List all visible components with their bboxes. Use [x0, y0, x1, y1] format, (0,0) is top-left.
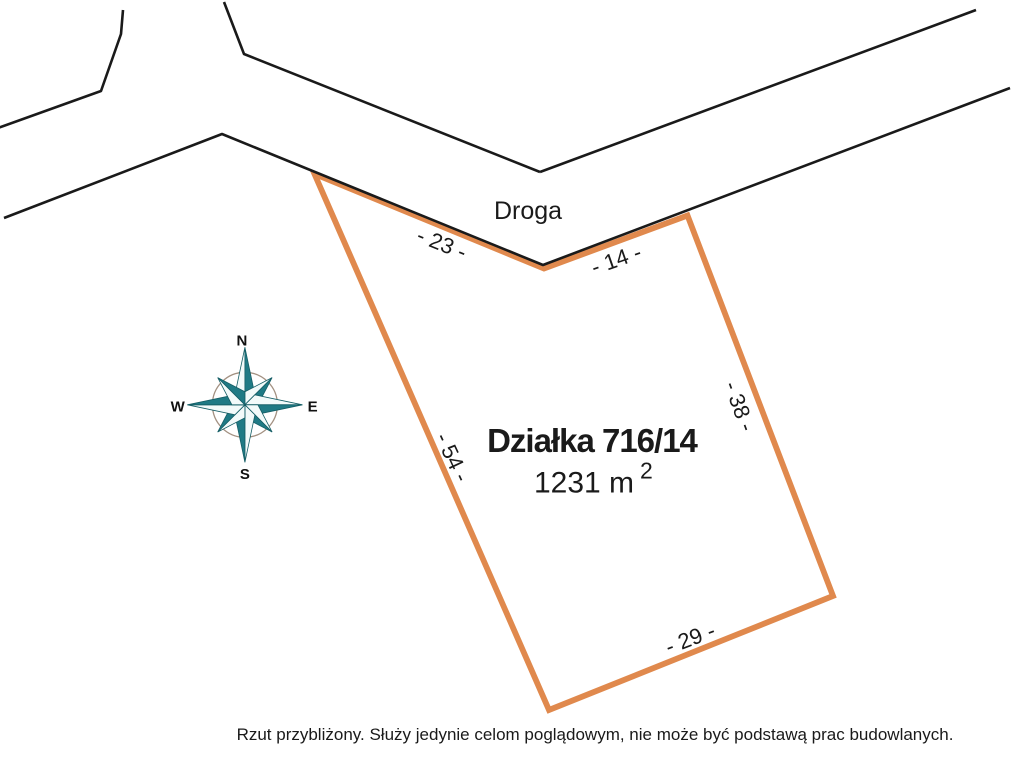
svg-text:Działka 716/14: Działka 716/14 — [487, 422, 698, 459]
svg-text:2: 2 — [640, 458, 653, 484]
svg-text:E: E — [308, 399, 318, 416]
svg-text:S: S — [240, 466, 250, 483]
svg-text:Droga: Droga — [494, 197, 562, 225]
svg-text:1231 m: 1231 m — [534, 467, 634, 500]
svg-text:W: W — [171, 399, 186, 416]
svg-text:Rzut przybliżony. Służy jedyni: Rzut przybliżony. Służy jedynie celom po… — [237, 725, 954, 744]
svg-text:N: N — [236, 332, 247, 349]
